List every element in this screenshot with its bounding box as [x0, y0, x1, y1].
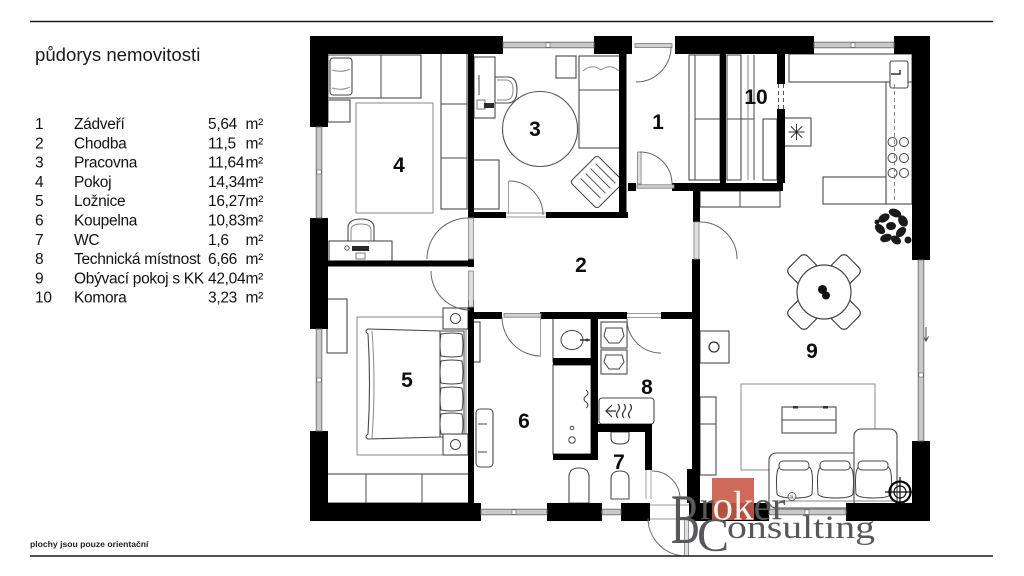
svg-text:14,34: 14,34 — [208, 174, 246, 191]
svg-text:8: 8 — [641, 376, 653, 399]
svg-text:10,83: 10,83 — [208, 213, 245, 230]
svg-text:1: 1 — [35, 116, 43, 133]
svg-text:3: 3 — [529, 118, 541, 141]
svg-text:m²: m² — [246, 155, 264, 172]
svg-text:m²: m² — [246, 116, 264, 133]
svg-text:6,66: 6,66 — [208, 251, 237, 268]
svg-text:9: 9 — [806, 340, 818, 363]
svg-text:3: 3 — [35, 155, 43, 172]
svg-text:m²: m² — [246, 251, 264, 268]
svg-text:onsulting: onsulting — [727, 510, 875, 546]
svg-text:5: 5 — [401, 369, 413, 392]
svg-text:42,04: 42,04 — [208, 270, 246, 287]
svg-text:B: B — [671, 481, 700, 559]
svg-text:Koupelna: Koupelna — [74, 213, 138, 230]
svg-text:6: 6 — [518, 410, 530, 433]
svg-text:Chodba: Chodba — [74, 135, 127, 152]
svg-text:m²: m² — [246, 135, 264, 152]
svg-text:11,64: 11,64 — [208, 155, 245, 172]
svg-text:6: 6 — [35, 213, 43, 230]
svg-text:16,27: 16,27 — [208, 193, 245, 210]
svg-text:4: 4 — [35, 174, 44, 191]
svg-text:10: 10 — [744, 86, 767, 109]
svg-text:m²: m² — [246, 290, 264, 307]
svg-text:5,64: 5,64 — [208, 116, 238, 133]
svg-text:C: C — [697, 509, 729, 562]
svg-text:9: 9 — [35, 270, 43, 287]
svg-text:m²: m² — [246, 232, 264, 249]
svg-text:m²: m² — [246, 174, 264, 191]
svg-text:8: 8 — [35, 251, 43, 268]
svg-text:R: R — [790, 495, 794, 501]
svg-text:2: 2 — [575, 254, 587, 277]
svg-text:Obývací pokoj s KK: Obývací pokoj s KK — [74, 270, 205, 287]
svg-text:m²: m² — [246, 193, 264, 210]
svg-text:1: 1 — [652, 111, 664, 134]
svg-text:Komora: Komora — [74, 290, 127, 307]
svg-text:2: 2 — [35, 135, 43, 152]
svg-text:Pokoj: Pokoj — [74, 174, 111, 191]
svg-text:plochy jsou pouze orientační: plochy jsou pouze orientační — [30, 539, 149, 549]
svg-text:1,6: 1,6 — [208, 232, 229, 249]
svg-text:WC: WC — [74, 232, 99, 249]
svg-text:7: 7 — [35, 232, 43, 249]
svg-text:Zádveří: Zádveří — [74, 116, 125, 133]
svg-text:m²: m² — [246, 270, 264, 287]
svg-text:m²: m² — [246, 213, 264, 230]
svg-text:4: 4 — [393, 154, 405, 177]
svg-text:Ložnice: Ložnice — [74, 193, 125, 210]
svg-text:3,23: 3,23 — [208, 290, 237, 307]
svg-text:11,5: 11,5 — [208, 135, 236, 152]
svg-text:5: 5 — [35, 193, 43, 210]
svg-text:Technická místnost: Technická místnost — [74, 251, 201, 268]
svg-text:Pracovna: Pracovna — [74, 155, 138, 172]
svg-text:půdorys nemovitosti: půdorys nemovitosti — [35, 44, 200, 65]
svg-text:7: 7 — [613, 451, 625, 474]
svg-text:10: 10 — [35, 290, 52, 307]
